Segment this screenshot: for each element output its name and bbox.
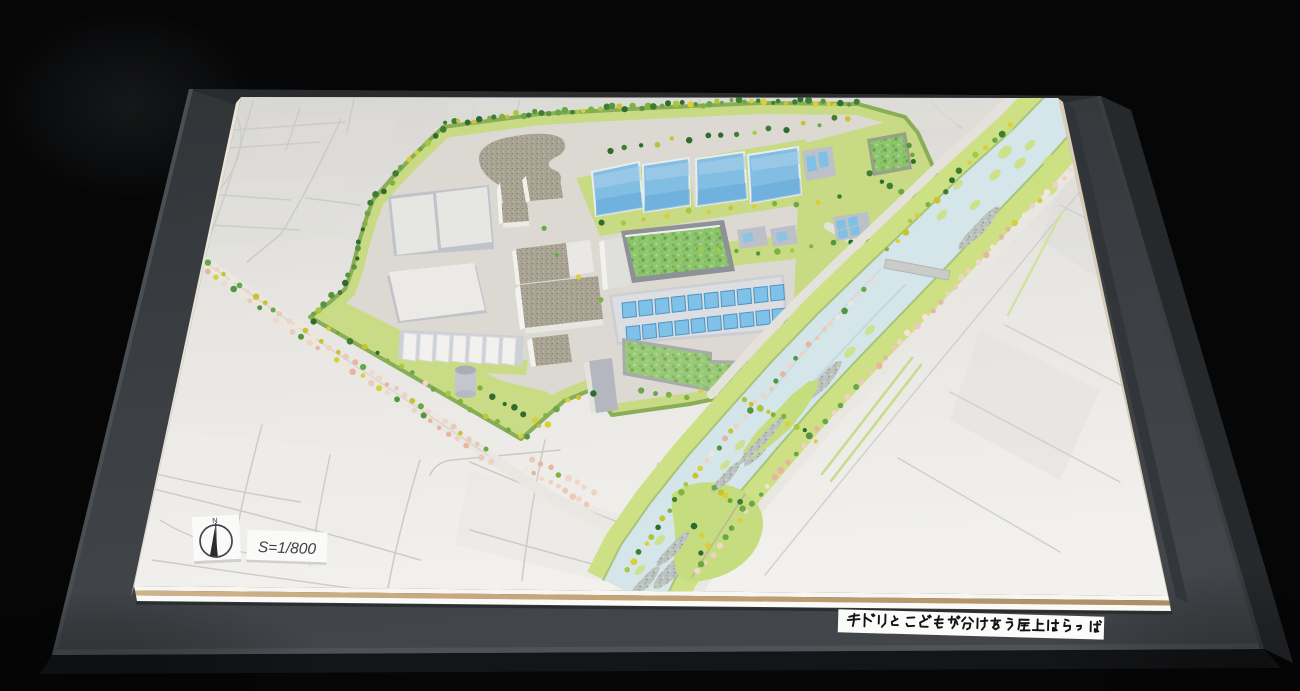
svg-text:S=1/800: S=1/800	[258, 539, 317, 558]
svg-text:N: N	[212, 516, 218, 525]
